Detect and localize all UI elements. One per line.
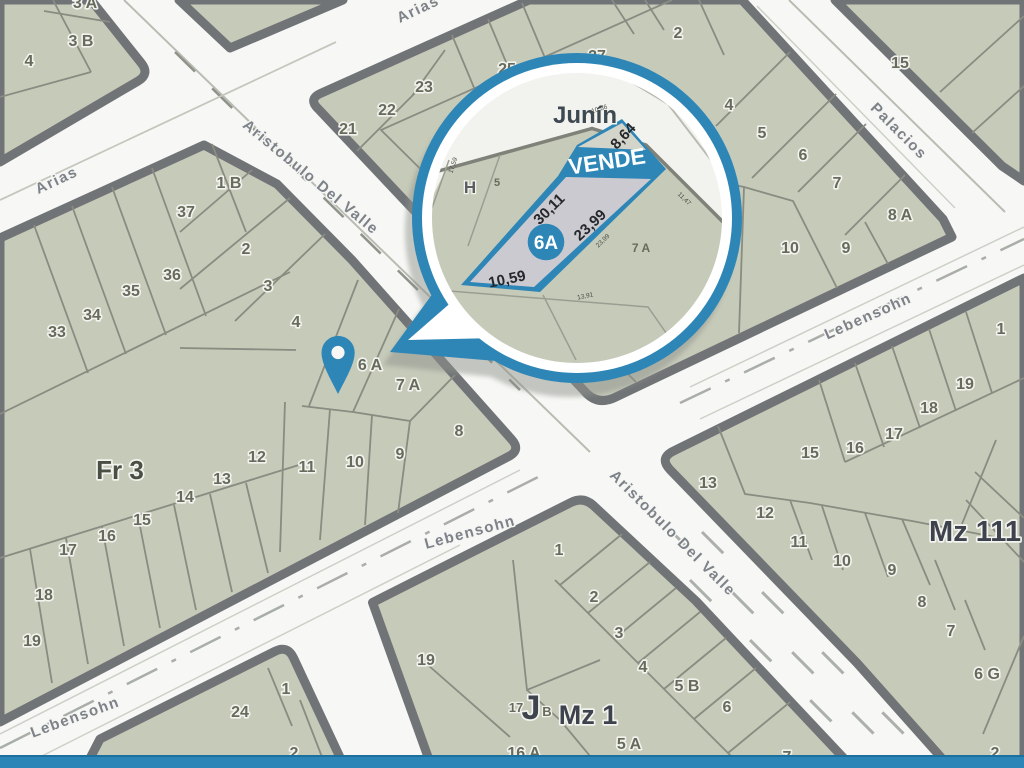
svg-text:3 A: 3 A <box>73 0 98 12</box>
svg-text:15: 15 <box>133 512 151 529</box>
svg-text:14: 14 <box>176 489 194 506</box>
svg-text:J: J <box>522 689 541 727</box>
svg-text:16: 16 <box>846 440 864 457</box>
svg-text:12: 12 <box>756 505 774 522</box>
svg-text:35: 35 <box>122 283 140 300</box>
svg-text:9: 9 <box>842 240 851 257</box>
svg-text:21: 21 <box>339 121 357 138</box>
svg-text:1 B: 1 B <box>217 175 242 192</box>
svg-text:Mz 1: Mz 1 <box>559 700 618 730</box>
svg-text:Fr 3: Fr 3 <box>96 455 144 485</box>
svg-text:11: 11 <box>299 459 316 476</box>
svg-text:34: 34 <box>83 307 101 324</box>
svg-text:Junín: Junín <box>553 102 617 129</box>
svg-text:10: 10 <box>346 454 364 471</box>
svg-text:7: 7 <box>947 623 956 640</box>
svg-text:4: 4 <box>292 314 301 331</box>
svg-text:24: 24 <box>231 704 249 721</box>
svg-text:16: 16 <box>98 528 116 545</box>
svg-text:Mz 111: Mz 111 <box>929 516 1021 548</box>
svg-text:H: H <box>464 178 476 197</box>
svg-text:4: 4 <box>25 53 34 70</box>
svg-text:6 G: 6 G <box>974 666 1000 683</box>
svg-text:7 A: 7 A <box>396 377 421 394</box>
svg-text:8: 8 <box>455 423 464 440</box>
svg-text:7 A: 7 A <box>632 241 651 255</box>
svg-text:8: 8 <box>918 594 927 611</box>
svg-text:10: 10 <box>833 553 851 570</box>
svg-text:3: 3 <box>264 278 273 295</box>
svg-text:7: 7 <box>833 175 842 192</box>
svg-text:3 B: 3 B <box>69 33 94 50</box>
svg-text:15: 15 <box>801 445 819 462</box>
svg-text:5 B: 5 B <box>675 678 700 695</box>
svg-text:4: 4 <box>639 659 648 676</box>
svg-text:3: 3 <box>615 625 624 642</box>
svg-text:17: 17 <box>59 542 77 559</box>
svg-text:1: 1 <box>997 321 1006 338</box>
svg-text:1: 1 <box>282 681 291 698</box>
svg-text:11: 11 <box>791 534 808 551</box>
svg-text:23: 23 <box>415 79 433 96</box>
svg-text:1: 1 <box>555 542 564 559</box>
svg-text:13: 13 <box>699 475 717 492</box>
svg-text:19: 19 <box>23 633 41 650</box>
svg-text:37: 37 <box>177 204 195 221</box>
svg-text:36: 36 <box>163 267 181 284</box>
svg-text:9: 9 <box>888 562 897 579</box>
svg-text:15: 15 <box>891 55 909 72</box>
svg-text:13: 13 <box>213 471 231 488</box>
svg-text:19: 19 <box>417 652 435 669</box>
svg-text:B: B <box>542 704 551 719</box>
svg-text:2: 2 <box>242 241 251 258</box>
svg-text:18: 18 <box>35 587 53 604</box>
svg-text:6A: 6A <box>534 233 559 254</box>
svg-text:2: 2 <box>674 25 683 42</box>
svg-text:4: 4 <box>725 97 734 114</box>
svg-text:6: 6 <box>799 147 808 164</box>
svg-text:2: 2 <box>590 589 599 606</box>
svg-text:5: 5 <box>494 177 500 189</box>
svg-text:8 A: 8 A <box>888 207 913 224</box>
svg-text:17: 17 <box>885 426 903 443</box>
svg-text:12: 12 <box>248 449 266 466</box>
svg-text:22: 22 <box>378 102 396 119</box>
svg-text:10: 10 <box>781 240 799 257</box>
svg-text:6: 6 <box>723 699 732 716</box>
svg-text:33: 33 <box>48 324 66 341</box>
svg-text:9: 9 <box>396 446 405 463</box>
svg-text:19: 19 <box>956 376 974 393</box>
svg-text:18: 18 <box>920 400 938 417</box>
svg-text:5 A: 5 A <box>617 736 642 753</box>
svg-text:5: 5 <box>758 125 767 142</box>
svg-text:6 A: 6 A <box>358 357 383 374</box>
